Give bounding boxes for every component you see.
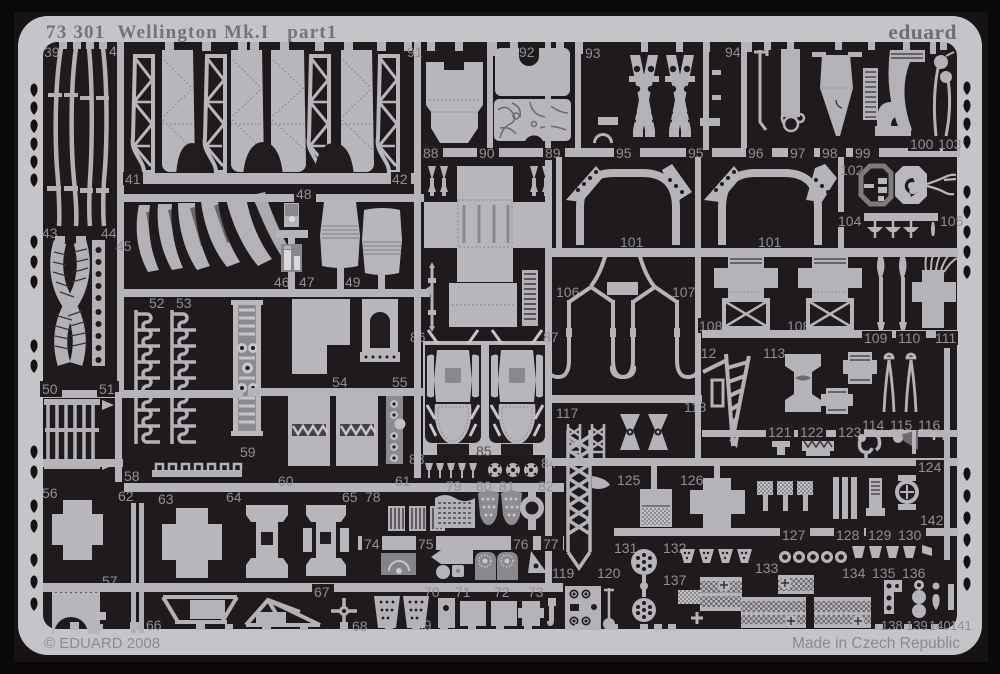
svg-text:137: 137 (663, 572, 687, 588)
svg-text:111: 111 (935, 330, 956, 346)
svg-text:121: 121 (768, 424, 792, 440)
svg-text:100: 100 (910, 136, 934, 152)
svg-text:65: 65 (342, 489, 358, 505)
svg-text:99: 99 (855, 145, 871, 161)
svg-text:78: 78 (365, 489, 381, 505)
svg-text:125: 125 (617, 472, 641, 488)
svg-text:110: 110 (898, 330, 921, 346)
svg-text:60: 60 (278, 473, 294, 489)
svg-text:109: 109 (864, 330, 888, 346)
svg-text:74: 74 (364, 536, 380, 552)
svg-text:103: 103 (938, 136, 962, 152)
svg-text:113: 113 (763, 345, 786, 361)
svg-text:67: 67 (314, 584, 330, 600)
svg-text:76: 76 (513, 536, 529, 552)
svg-text:45: 45 (116, 238, 132, 254)
svg-text:66: 66 (146, 617, 162, 633)
svg-text:124: 124 (918, 459, 942, 475)
svg-text:85: 85 (476, 443, 492, 459)
svg-text:49: 49 (345, 274, 361, 290)
svg-text:70: 70 (424, 584, 440, 600)
svg-text:54: 54 (332, 374, 348, 390)
svg-text:72: 72 (494, 584, 510, 600)
svg-text:68: 68 (352, 618, 368, 634)
svg-text:63: 63 (158, 491, 174, 507)
svg-text:© EDUARD 2008: © EDUARD 2008 (44, 635, 160, 652)
svg-text:46: 46 (274, 274, 290, 290)
svg-text:75: 75 (418, 536, 434, 552)
svg-text:48: 48 (296, 186, 312, 202)
svg-text:136: 136 (902, 565, 926, 581)
svg-text:128: 128 (836, 527, 860, 543)
svg-text:53: 53 (176, 295, 192, 311)
svg-text:59: 59 (240, 444, 256, 460)
svg-text:56: 56 (42, 485, 58, 501)
svg-text:55: 55 (392, 374, 408, 390)
svg-text:73 301 Wellington Mk.I part: 73 301 Wellington Mk.I part1 (46, 22, 338, 43)
svg-text:95: 95 (616, 145, 632, 161)
svg-text:44: 44 (101, 225, 117, 241)
svg-text:130: 130 (898, 527, 922, 543)
svg-text:140: 140 (929, 618, 951, 633)
svg-text:71: 71 (455, 584, 471, 600)
svg-text:101: 101 (620, 234, 644, 250)
svg-text:131: 131 (614, 540, 638, 556)
svg-text:138: 138 (881, 618, 903, 633)
svg-text:79: 79 (446, 478, 462, 494)
svg-text:42: 42 (392, 171, 408, 187)
svg-text:52: 52 (149, 295, 165, 311)
svg-text:119: 119 (552, 565, 575, 581)
svg-text:eduard: eduard (888, 20, 957, 44)
svg-text:82: 82 (538, 478, 554, 494)
svg-text:47: 47 (299, 274, 315, 290)
svg-text:Made in Czech Republic: Made in Czech Republic (792, 635, 960, 652)
svg-text:88: 88 (423, 145, 439, 161)
svg-text:142: 142 (920, 512, 944, 528)
svg-text:104: 104 (838, 213, 862, 229)
svg-text:96: 96 (748, 145, 764, 161)
svg-text:41: 41 (125, 171, 141, 187)
svg-text:94: 94 (725, 44, 741, 60)
svg-text:73: 73 (528, 584, 544, 600)
svg-text:122: 122 (800, 424, 824, 440)
svg-text:98: 98 (822, 145, 838, 161)
svg-text:62: 62 (118, 488, 134, 504)
svg-text:58: 58 (124, 468, 140, 484)
svg-text:139: 139 (906, 618, 928, 633)
svg-text:141: 141 (950, 618, 972, 633)
svg-text:77: 77 (543, 536, 559, 552)
svg-text:129: 129 (868, 527, 892, 543)
svg-text:93: 93 (585, 45, 601, 61)
svg-text:51: 51 (99, 381, 115, 397)
svg-text:134: 134 (842, 565, 866, 581)
svg-text:61: 61 (395, 473, 411, 489)
svg-text:117: 117 (556, 405, 579, 421)
svg-text:50: 50 (42, 381, 58, 397)
svg-text:107: 107 (672, 284, 696, 300)
svg-text:101: 101 (758, 234, 782, 250)
svg-text:105: 105 (940, 213, 964, 229)
svg-text:120: 120 (597, 565, 621, 581)
svg-text:64: 64 (226, 489, 242, 505)
svg-text:91: 91 (407, 44, 423, 60)
svg-text:97: 97 (790, 145, 806, 161)
svg-text:126: 126 (680, 472, 704, 488)
svg-text:127: 127 (782, 527, 806, 543)
svg-text:135: 135 (872, 565, 896, 581)
svg-text:92: 92 (519, 44, 535, 60)
svg-text:133: 133 (755, 560, 779, 576)
